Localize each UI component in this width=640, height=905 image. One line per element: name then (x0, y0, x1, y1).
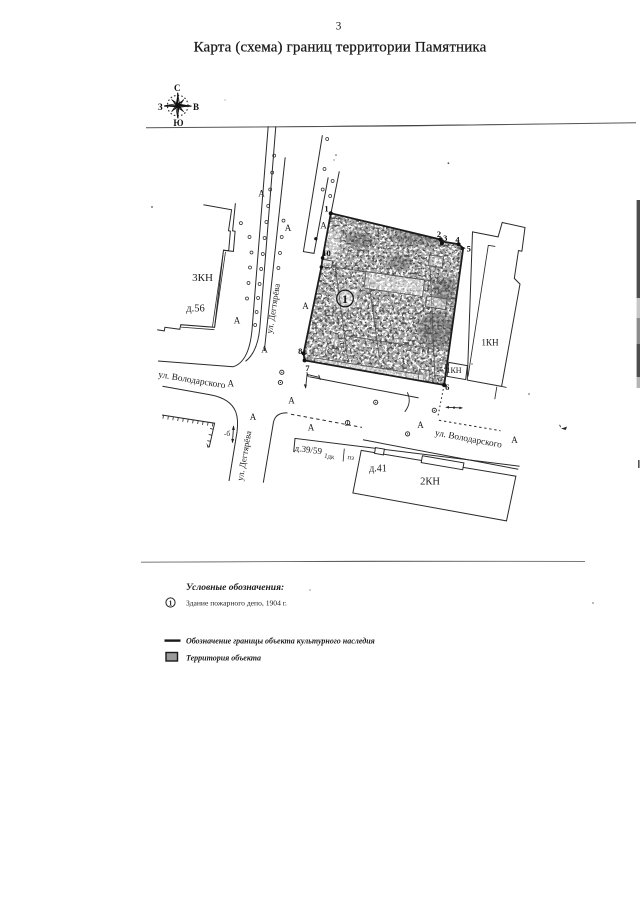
svg-text:Карта (схема) границ территори: Карта (схема) границ территории Памятник… (194, 40, 487, 56)
svg-text:Территория объекта: Территория объекта (186, 654, 261, 663)
svg-text:д.56: д.56 (186, 304, 204, 315)
svg-text:З: З (158, 102, 163, 112)
svg-text:А: А (261, 345, 268, 355)
svg-text:-б: -б (224, 429, 230, 438)
svg-text:А: А (320, 221, 327, 231)
svg-text:N: N (423, 327, 430, 336)
svg-text:В: В (193, 102, 199, 112)
svg-text:А: А (285, 223, 292, 233)
svg-text:Ю: Ю (173, 118, 183, 128)
svg-text:3КН: 3КН (192, 272, 213, 284)
svg-text:10: 10 (322, 248, 331, 258)
svg-text:Обозначение границы объекта ку: Обозначение границы объекта культурного … (186, 637, 375, 646)
svg-text:1КН: 1КН (446, 366, 461, 375)
svg-text:С: С (174, 83, 181, 93)
svg-text:1КН: 1КН (481, 338, 499, 348)
svg-text:сар: сар (324, 263, 331, 268)
svg-text:1: 1 (324, 204, 328, 214)
svg-text:пз: пз (347, 453, 355, 462)
svg-text:2: 2 (437, 229, 441, 239)
svg-text:3: 3 (336, 21, 342, 33)
svg-text:1: 1 (342, 292, 348, 306)
svg-text:А: А (250, 412, 257, 422)
svg-text:А: А (417, 420, 424, 430)
svg-text:д.41: д.41 (369, 464, 387, 475)
svg-text:8: 8 (298, 346, 302, 356)
svg-text:1дк: 1дк (324, 452, 336, 461)
svg-text:А: А (511, 435, 518, 445)
svg-text:А: А (288, 396, 295, 406)
svg-text:Здание пожарного депо, 1904 г.: Здание пожарного депо, 1904 г. (186, 599, 287, 608)
svg-text:1: 1 (169, 599, 173, 608)
svg-text:А: А (308, 423, 315, 433)
svg-text:Условные обозначения:: Условные обозначения: (186, 582, 284, 593)
svg-text:5: 5 (467, 244, 471, 254)
svg-text:А: А (228, 379, 235, 389)
svg-text:3: 3 (443, 233, 447, 243)
svg-text:2КН: 2КН (420, 477, 440, 488)
svg-text:А: А (258, 189, 265, 199)
svg-text:А: А (234, 316, 241, 326)
svg-text:А: А (302, 301, 309, 311)
svg-text:6: 6 (445, 382, 449, 392)
